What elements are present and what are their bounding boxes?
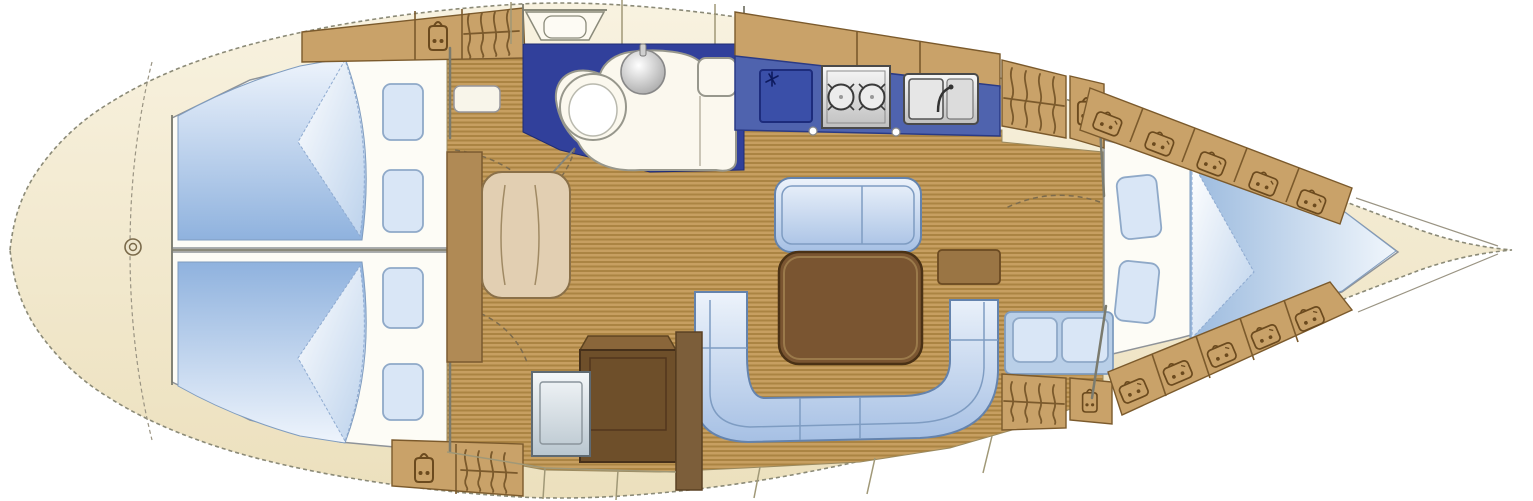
chart-table-slope (580, 336, 676, 350)
rudder-post-icon (125, 239, 141, 255)
gimbal-knob (892, 128, 900, 136)
galley (735, 12, 1000, 136)
washbasin (621, 50, 665, 94)
cistern (698, 58, 736, 96)
pillow (1116, 174, 1162, 240)
sink-basin (909, 79, 943, 119)
gimbal-knob (809, 127, 817, 135)
pillow (383, 84, 423, 140)
chart-table (580, 350, 676, 462)
nav-seat (482, 172, 570, 298)
pillow (383, 364, 423, 420)
sideboard-console (938, 250, 1000, 284)
straight-settee (775, 178, 921, 252)
bench-cushion (1013, 318, 1057, 362)
shelf-hatch (454, 86, 500, 112)
pillow (383, 170, 423, 232)
toilet-seat (569, 84, 617, 136)
yacht-floor-plan (0, 0, 1533, 501)
pillow (1114, 260, 1160, 324)
pillow (383, 268, 423, 328)
dining-table (779, 252, 922, 364)
nav-side-cabinet (676, 332, 702, 490)
basin-faucet (640, 44, 646, 56)
aft-lower-lockers (392, 440, 523, 496)
nav-back-panel (447, 152, 482, 362)
companionway-step-tread (544, 16, 586, 38)
refrigerator (760, 70, 812, 122)
